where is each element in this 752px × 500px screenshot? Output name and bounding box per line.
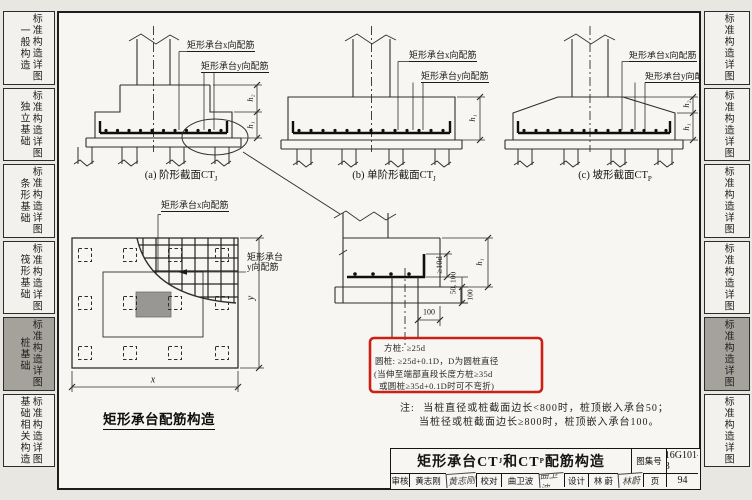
dim-h1-c: h₁ <box>681 123 691 130</box>
tab-label: 标准构造详图 <box>30 396 40 465</box>
dim-x-plan: x <box>151 375 155 386</box>
dim-y-plan: y <box>246 296 257 300</box>
sidebar-left-tab-foundation-related[interactable]: 基础相关构造 标准构造详图 <box>3 394 55 468</box>
label-rebar-y-plan: 矩形承台 y向配筋 <box>247 253 283 273</box>
dim-h1-b: h₁ <box>467 114 477 121</box>
sidebar-left-tab-independent-foundation[interactable]: 独立基础 标准构造详图 <box>3 88 55 162</box>
dim-pile-embed: 50, 100 <box>449 272 458 295</box>
sidebar-right-tab-2[interactable]: 标准构造详图 <box>704 88 750 162</box>
sidebar-right-tab-1[interactable]: 标准构造详图 <box>704 11 750 85</box>
designer-signature: 林蔚 <box>618 472 644 488</box>
notes-line-1: 注: 当桩直径或桩截面边长<800时，桩顶嵌入承台50； <box>400 399 669 414</box>
tab-label: 标准构造详图 <box>722 243 732 312</box>
sidebar-left-tab-pile-foundation[interactable]: 桩基础 标准构造详图 <box>3 317 55 391</box>
dim-cushion-100: 100 <box>466 289 475 300</box>
tab-category-label: 桩基础 <box>18 337 28 372</box>
dim-h2-c: h₂ <box>681 100 691 107</box>
page-label: 页 <box>643 473 666 487</box>
sheet-title: 矩形承台CTJ和CTP配筋构造 <box>391 449 631 473</box>
tab-label: 标准构造详图 <box>722 166 732 235</box>
tab-label: 标准构造详图 <box>30 319 40 388</box>
redbox-line-round-pile: 圆桩: ≥25d+0.1D，D为圆桩直径 <box>375 355 499 367</box>
tab-label: 标准构造详图 <box>30 166 40 235</box>
page-number: 94 <box>666 473 698 487</box>
tab-category-label: 独立基础 <box>18 101 28 147</box>
notes-line-2: 当桩径或桩截面边长≥800时，桩顶嵌入承台100。 <box>419 413 660 428</box>
atlas-no-value: 16G101-3 <box>666 449 698 473</box>
caption-b: (b) 单阶形截面CTJ <box>328 167 460 183</box>
dim-bend-length: ≥10d <box>434 256 444 273</box>
tab-label: 标准构造详图 <box>30 13 40 82</box>
designer-role-label: 设计 <box>564 473 588 487</box>
sidebar-left-tab-strip-foundation[interactable]: 条形基础 标准构造详图 <box>3 164 55 238</box>
label-rebar-x-plan: 矩形承台x向配筋 <box>161 201 229 212</box>
dim-h2-a: h₂ <box>245 94 255 101</box>
redbox-line-note-1: (当伸至端部直段长度方桩≥35d <box>374 368 493 380</box>
caption-a: (a) 阶形截面CTJ <box>122 167 240 183</box>
atlas-no-label: 图集号 <box>631 449 666 473</box>
plan-title: 矩形承台配筋构造 <box>103 408 215 430</box>
label-rebar-x-c: 矩形承台x向配筋 <box>629 51 697 62</box>
tab-label: 标准构造详图 <box>722 13 732 82</box>
label-rebar-y-b: 矩形承台y向配筋 <box>421 72 489 83</box>
reviewer-signature: 黄志刚 <box>446 472 477 488</box>
sidebar-right-tab-5[interactable]: 标准构造详图 <box>704 317 750 391</box>
sidebar-left: 一般构造 标准构造详图 独立基础 标准构造详图 条形基础 标准构造详图 筏形基础… <box>3 11 55 467</box>
checker-signature: 曲卫波 <box>539 472 565 488</box>
reviewer-name: 黄志刚 <box>409 473 446 487</box>
dim-h1-detail: h₁ <box>474 258 484 265</box>
dim-h1-a: h₁ <box>245 121 255 128</box>
label-rebar-y-a: 矩形承台y向配筋 <box>201 62 269 73</box>
sidebar-left-tab-raft-foundation[interactable]: 筏形基础 标准构造详图 <box>3 241 55 315</box>
label-rebar-x-b: 矩形承台x向配筋 <box>409 51 477 62</box>
sidebar-right: 标准构造详图 标准构造详图 标准构造详图 标准构造详图 标准构造详图 标准构造详… <box>704 11 750 467</box>
label-rebar-x-a: 矩形承台x向配筋 <box>187 41 255 52</box>
sidebar-right-tab-6[interactable]: 标准构造详图 <box>704 394 750 468</box>
tab-category-label: 条形基础 <box>18 178 28 224</box>
reviewer-role-label: 审核 <box>391 473 409 487</box>
atlas-page: 一般构造 标准构造详图 独立基础 标准构造详图 条形基础 标准构造详图 筏形基础… <box>0 0 752 500</box>
label-rebar-y-c: 矩形承台y向配筋 <box>645 72 701 83</box>
tab-category-label: 筏形基础 <box>18 254 28 300</box>
sidebar-right-tab-4[interactable]: 标准构造详图 <box>704 241 750 315</box>
tab-label: 标准构造详图 <box>722 396 732 465</box>
checker-name: 曲卫波 <box>501 473 539 487</box>
tab-category-label: 一般构造 <box>18 25 28 71</box>
designer-name: 林 蔚 <box>588 473 618 487</box>
tab-category-label: 基础相关构造 <box>18 396 28 465</box>
redbox-line-square-pile: 方桩: ≥25d <box>384 342 425 354</box>
sidebar-right-tab-3[interactable]: 标准构造详图 <box>704 164 750 238</box>
title-block: 矩形承台CTJ和CTP配筋构造 图集号 16G101-3 审核 黄志刚 黄志刚 … <box>390 448 701 490</box>
tab-label: 标准构造详图 <box>30 243 40 312</box>
checker-role-label: 校对 <box>476 473 501 487</box>
sidebar-left-tab-general[interactable]: 一般构造 标准构造详图 <box>3 11 55 85</box>
caption-c: (c) 坡形截面CTP <box>556 167 674 183</box>
tab-label: 标准构造详图 <box>30 90 40 159</box>
redbox-line-note-2: 或圆桩≥35d+0.1D时可不弯折) <box>379 380 494 392</box>
tab-label: 标准构造详图 <box>722 90 732 159</box>
tab-label: 标准构造详图 <box>722 319 732 388</box>
dim-offset-100: 100 <box>423 308 435 317</box>
